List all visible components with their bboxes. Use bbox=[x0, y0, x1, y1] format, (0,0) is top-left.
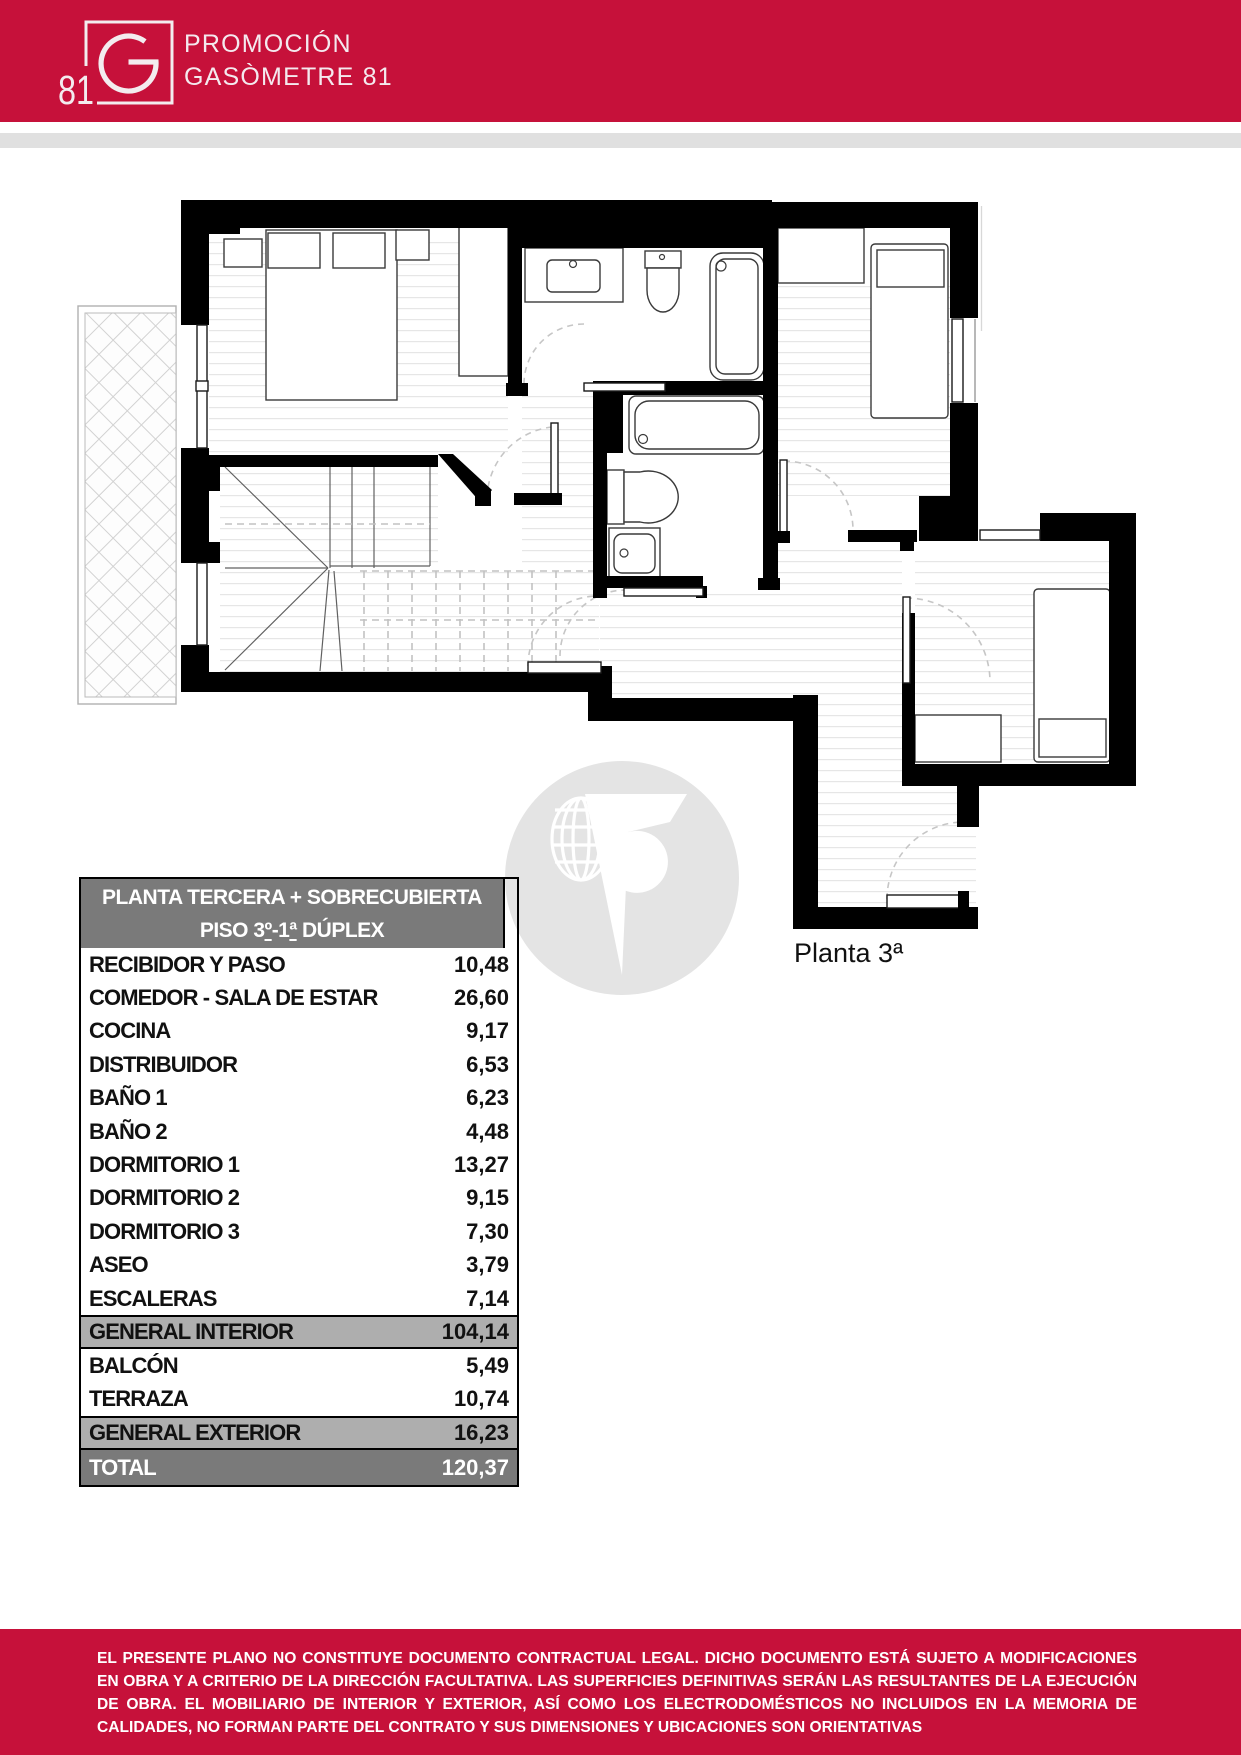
svg-text:81: 81 bbox=[58, 67, 94, 113]
